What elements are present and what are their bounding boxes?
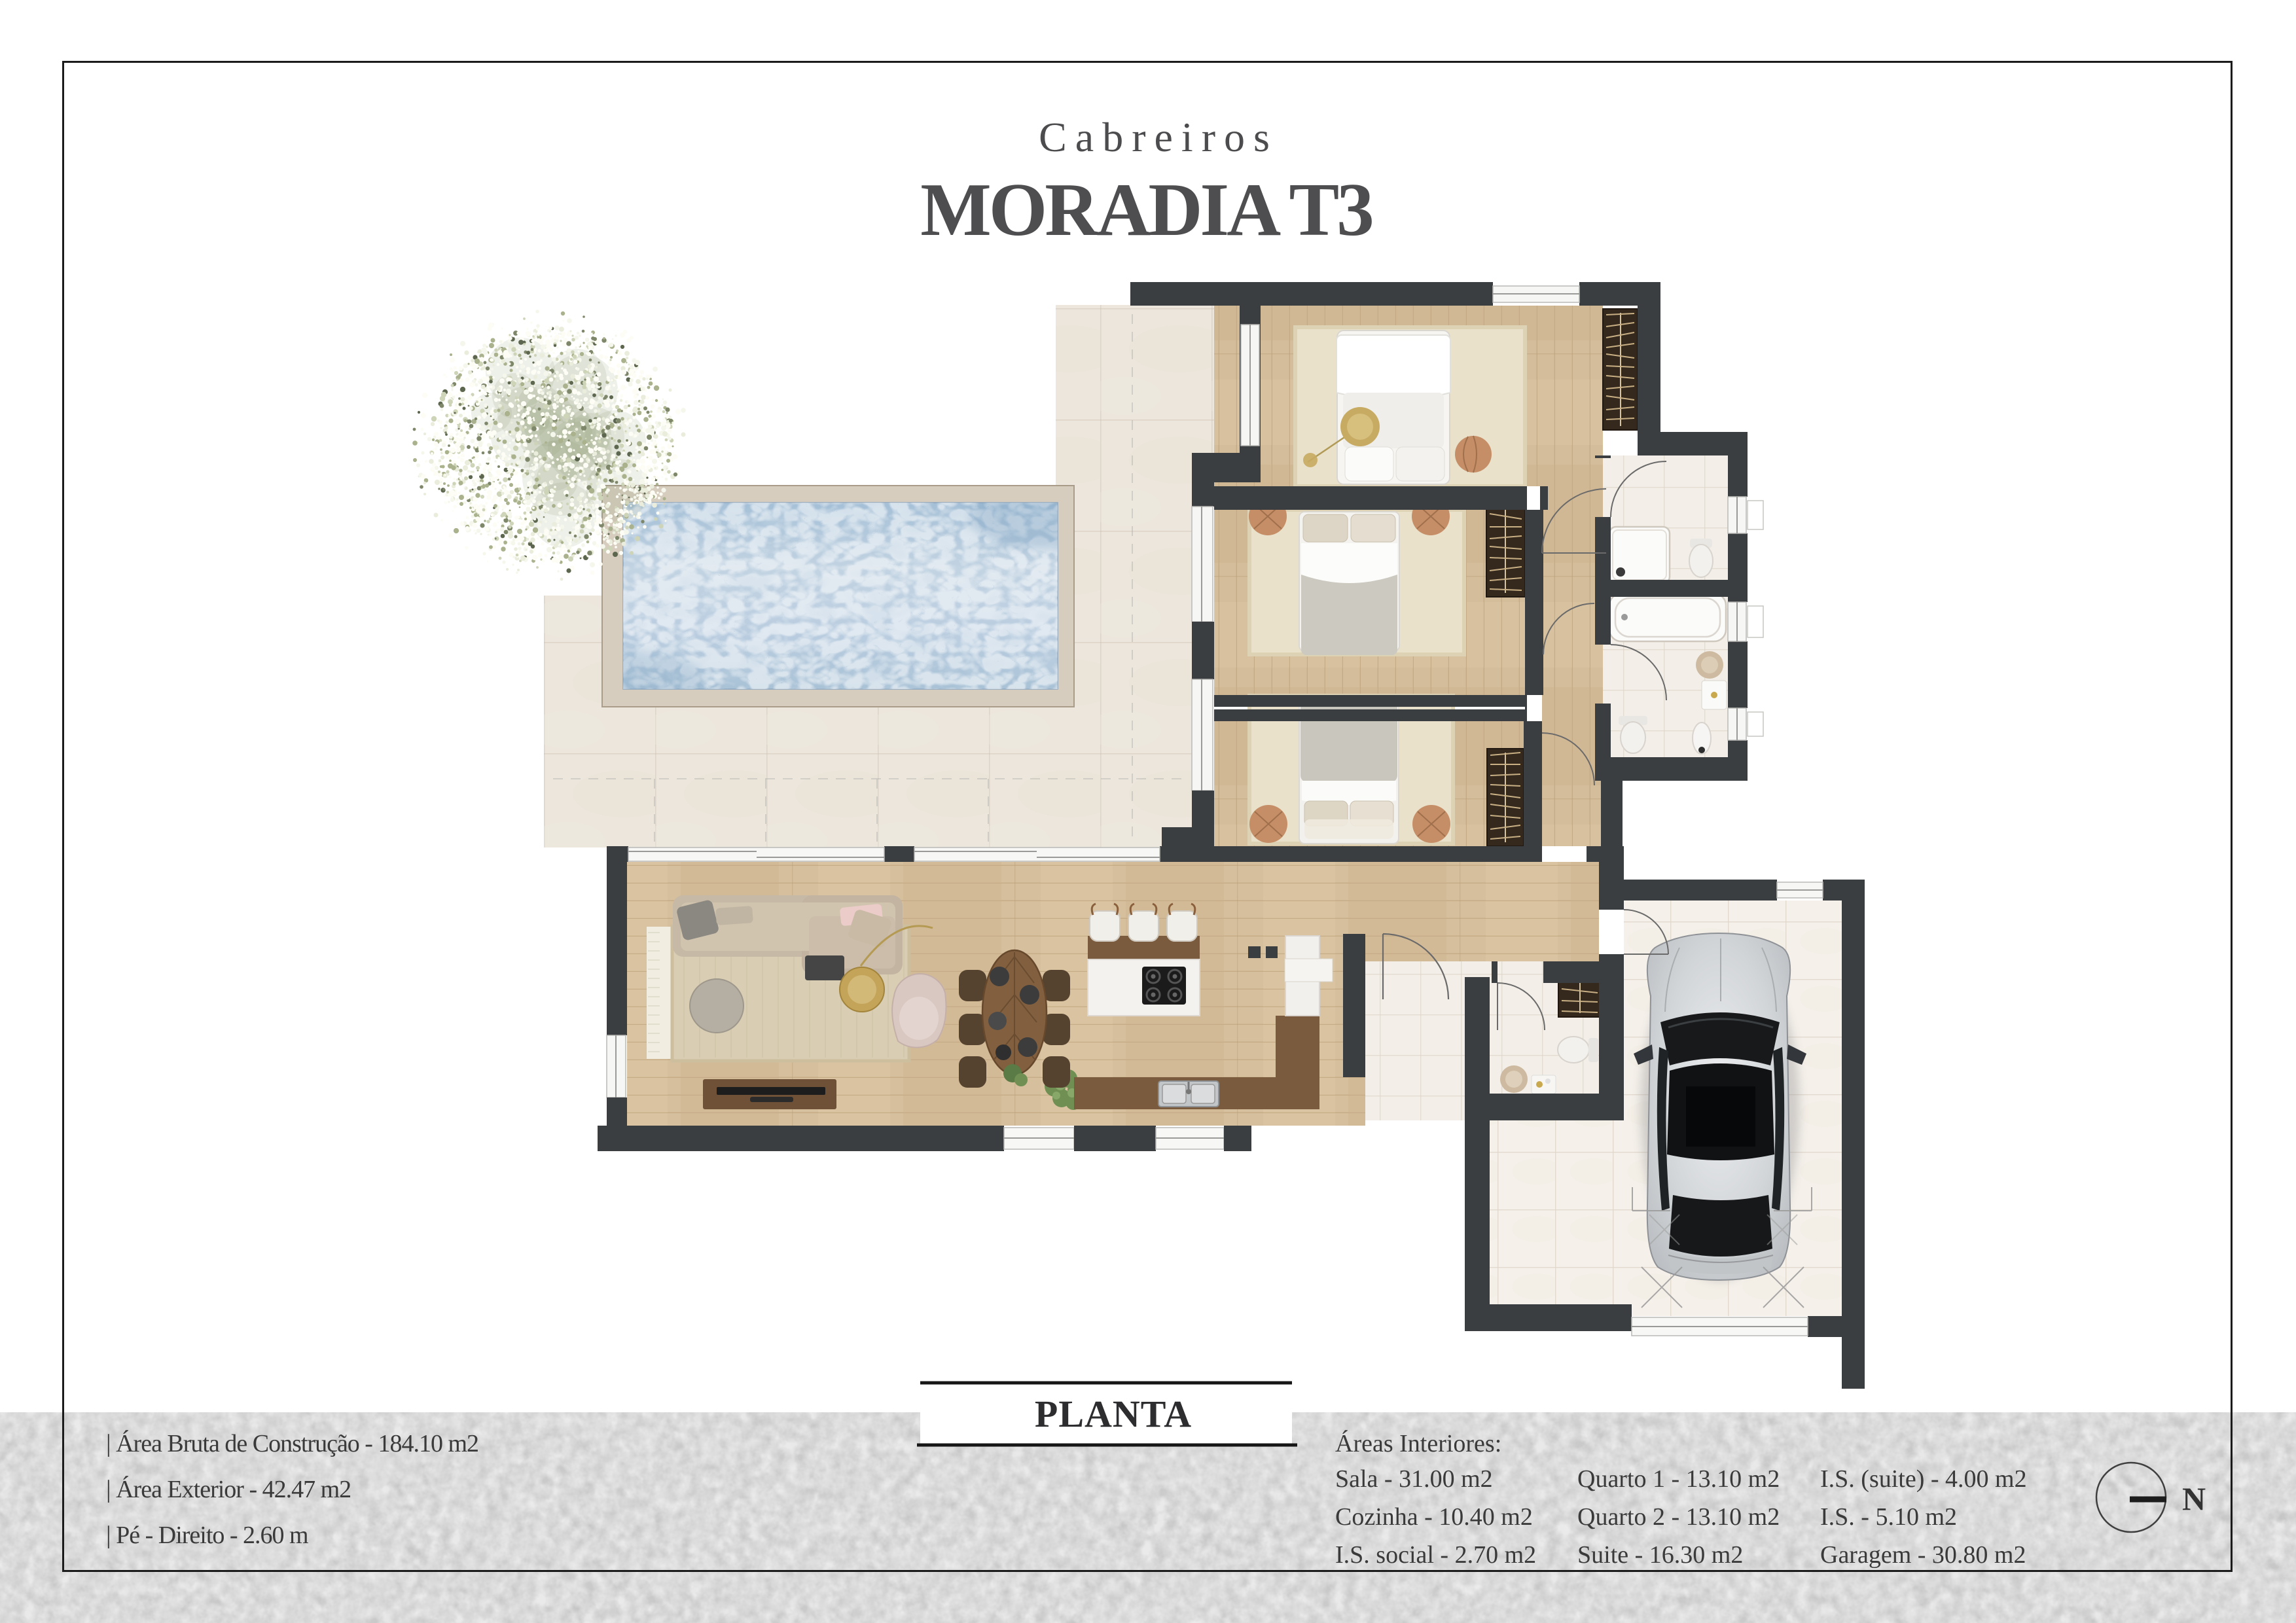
svg-text:I.S. social - 2.70 m2: I.S. social - 2.70 m2	[1335, 1541, 1536, 1569]
svg-text:Quarto 2 - 13.10 m2: Quarto 2 - 13.10 m2	[1577, 1503, 1780, 1531]
svg-text:Suite - 16.30 m2: Suite - 16.30 m2	[1577, 1541, 1743, 1569]
svg-text:Áreas Interiores:: Áreas Interiores:	[1335, 1430, 1501, 1457]
svg-text:N: N	[2182, 1480, 2206, 1517]
svg-text:PLANTA: PLANTA	[1035, 1393, 1192, 1435]
svg-text:Cabreiros: Cabreiros	[1039, 114, 1278, 160]
svg-text:Sala - 31.00 m2: Sala - 31.00 m2	[1335, 1465, 1493, 1493]
svg-text:| Pé - Direito - 2.60 m: | Pé - Direito - 2.60 m	[106, 1522, 308, 1549]
svg-text:| Área Bruta de Construção - 1: | Área Bruta de Construção - 184.10 m2	[106, 1430, 478, 1457]
svg-text:Garagem - 30.80 m2: Garagem - 30.80 m2	[1820, 1541, 2026, 1569]
svg-text:Cozinha - 10.40 m2: Cozinha - 10.40 m2	[1335, 1503, 1533, 1531]
svg-text:| Área Exterior - 42.47 m2: | Área Exterior - 42.47 m2	[106, 1476, 351, 1503]
svg-text:Quarto 1 - 13.10 m2: Quarto 1 - 13.10 m2	[1577, 1465, 1780, 1493]
svg-text:MORADIA T3: MORADIA T3	[920, 168, 1372, 251]
svg-text:I.S. (suite) - 4.00 m2: I.S. (suite) - 4.00 m2	[1820, 1465, 2027, 1493]
svg-text:I.S. - 5.10 m2: I.S. - 5.10 m2	[1820, 1503, 1957, 1531]
